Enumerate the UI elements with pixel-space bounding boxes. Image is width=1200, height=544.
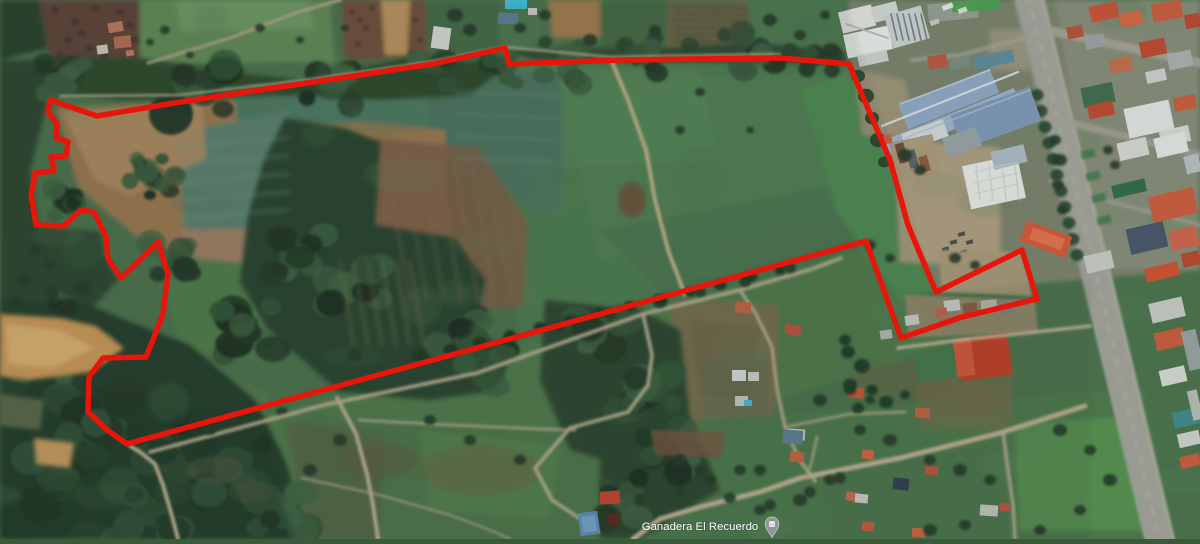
svg-text:Ganadera El Recuerdo: Ganadera El Recuerdo <box>642 521 759 533</box>
